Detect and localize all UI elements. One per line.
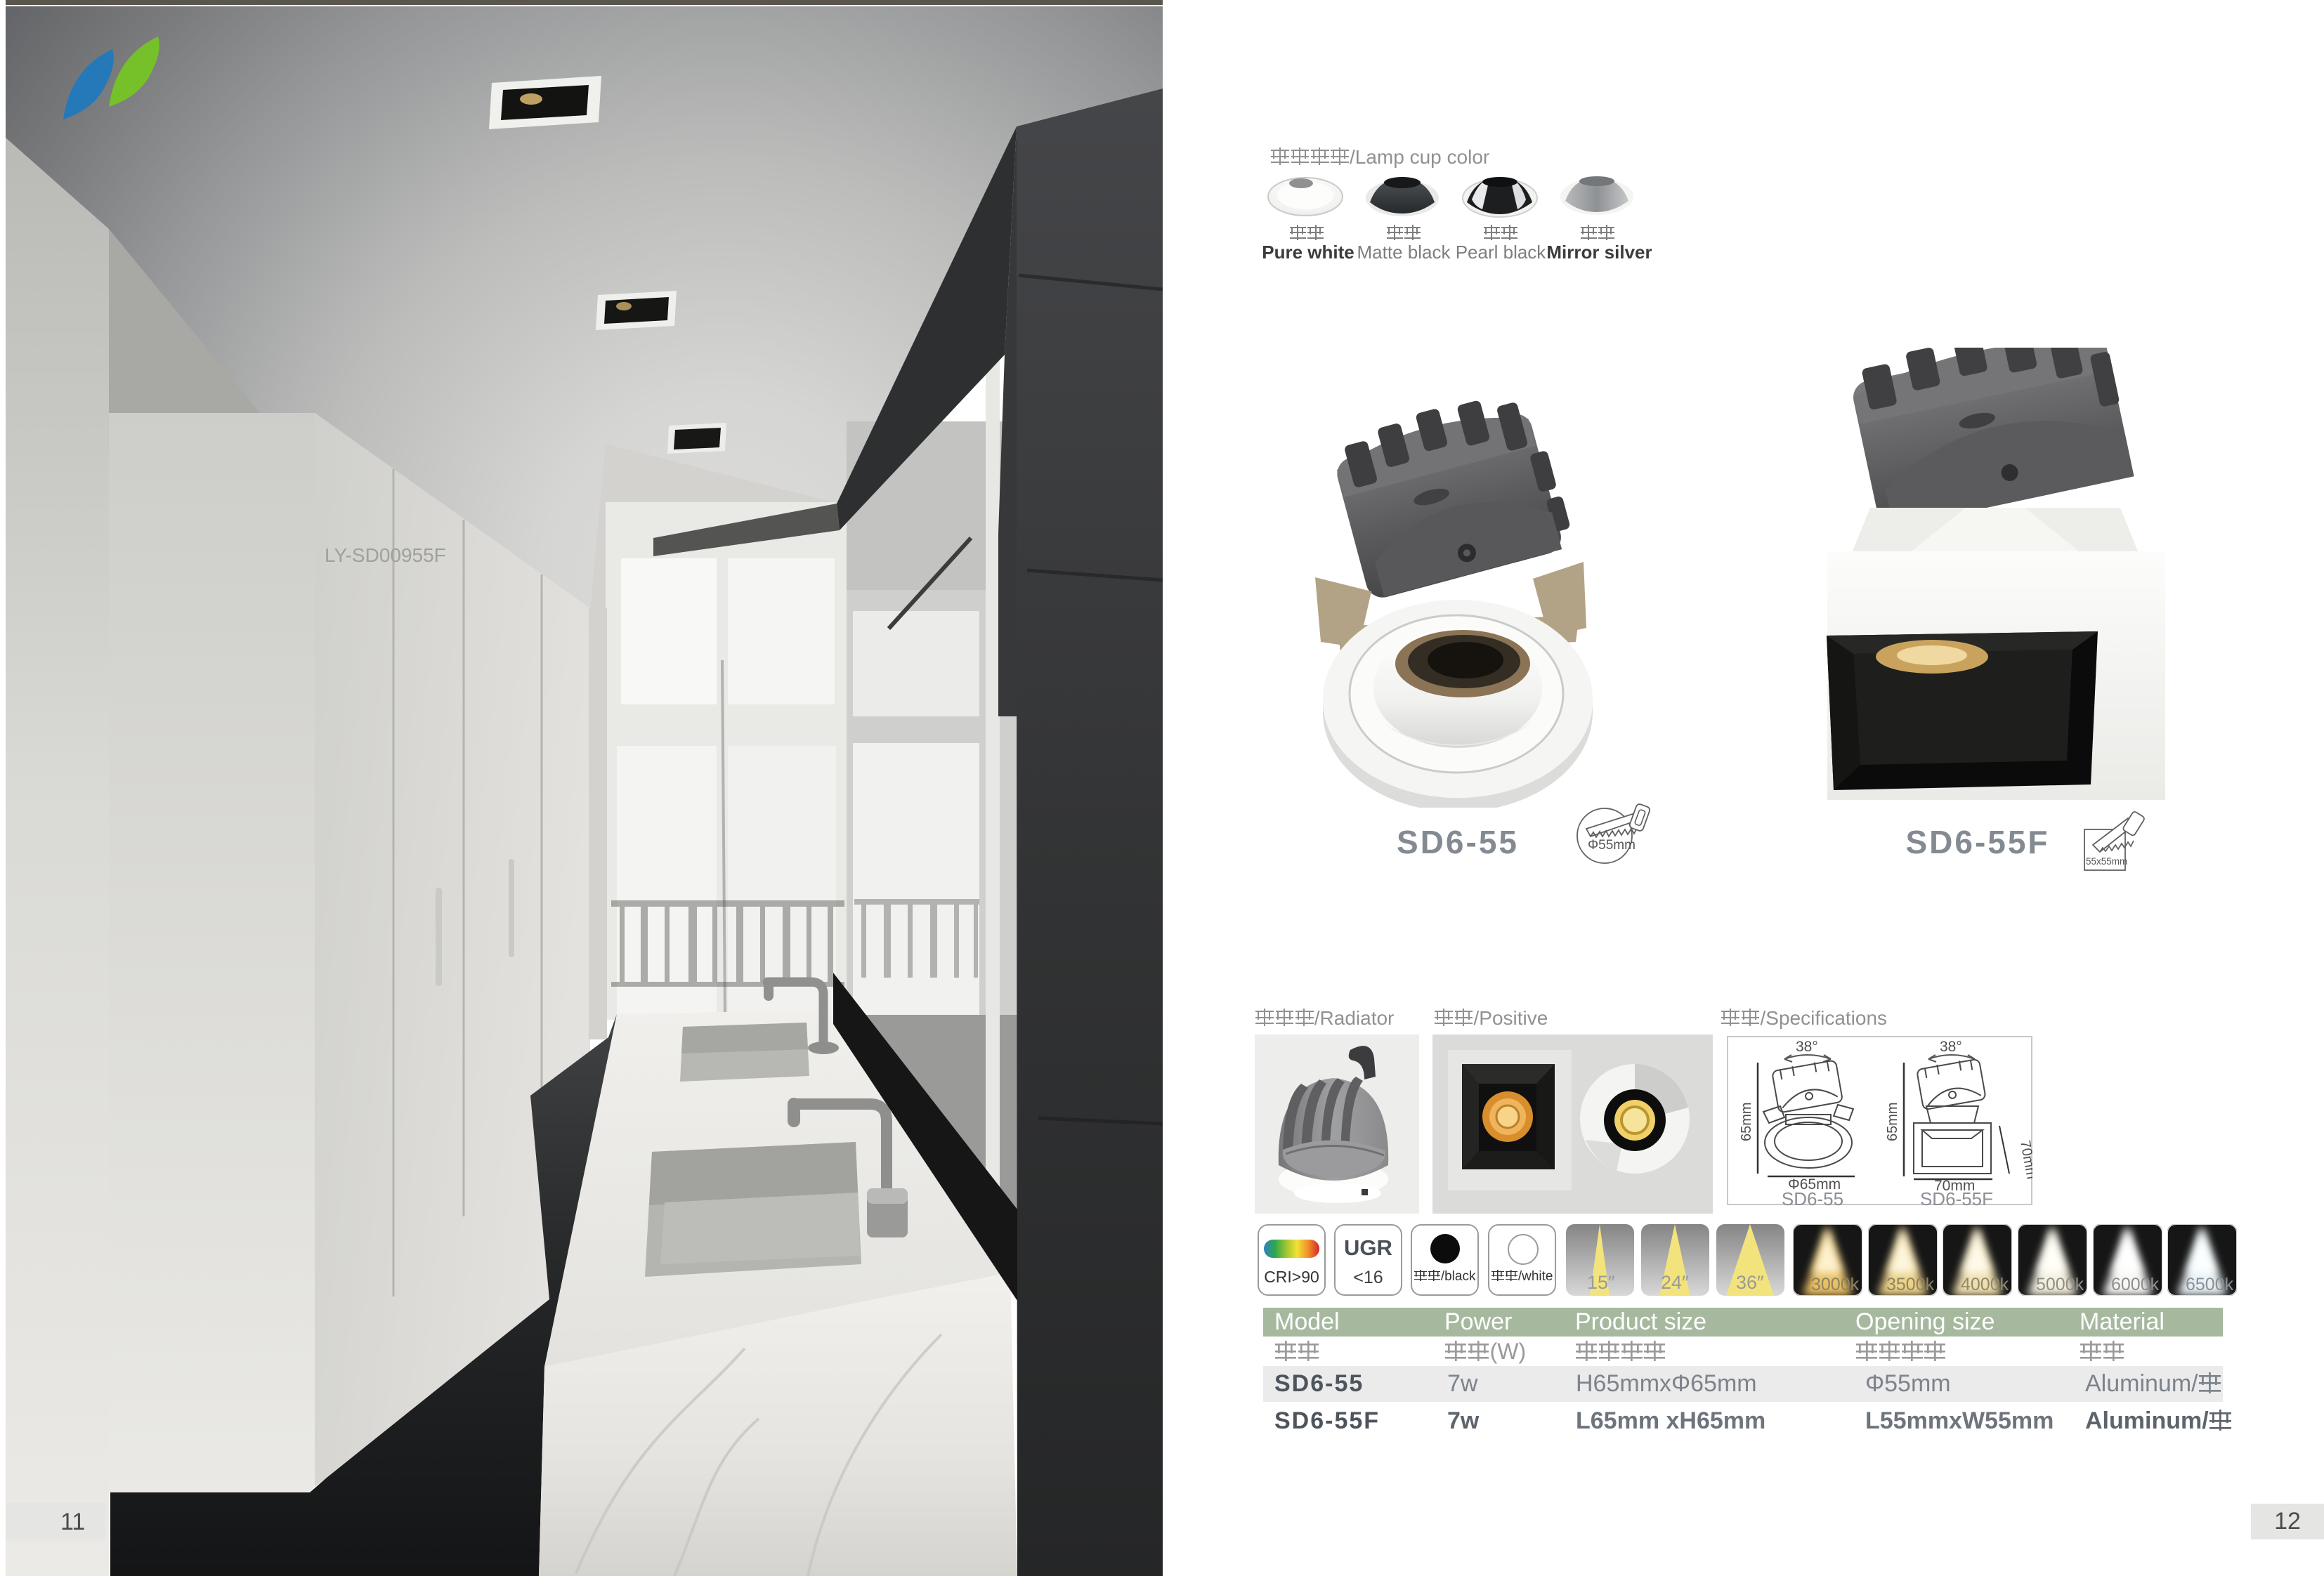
svg-text:6000k: 6000k [2111, 1275, 2160, 1294]
svg-text:15″: 15″ [1587, 1272, 1615, 1293]
svg-text:24″: 24″ [1661, 1272, 1689, 1293]
svg-text:11: 11 [60, 1509, 85, 1535]
svg-text:36″: 36″ [1736, 1272, 1764, 1293]
svg-text:LY-SD00955F: LY-SD00955F [325, 544, 446, 566]
svg-text:5000k: 5000k [2036, 1275, 2084, 1294]
svg-text:4000k: 4000k [1961, 1275, 2009, 1294]
svg-text:Φ55mm: Φ55mm [1588, 838, 1636, 853]
svg-text:3000k: 3000k [1811, 1275, 1860, 1294]
svg-text:65mm: 65mm [1739, 1102, 1754, 1141]
svg-text:38°: 38° [1940, 1039, 1962, 1055]
svg-text:6500k: 6500k [2186, 1275, 2234, 1294]
svg-text:55x55mm: 55x55mm [2086, 856, 2127, 867]
svg-text:65mm: 65mm [1885, 1102, 1900, 1141]
svg-text:38°: 38° [1796, 1039, 1818, 1055]
svg-text:3500k: 3500k [1886, 1275, 1935, 1294]
